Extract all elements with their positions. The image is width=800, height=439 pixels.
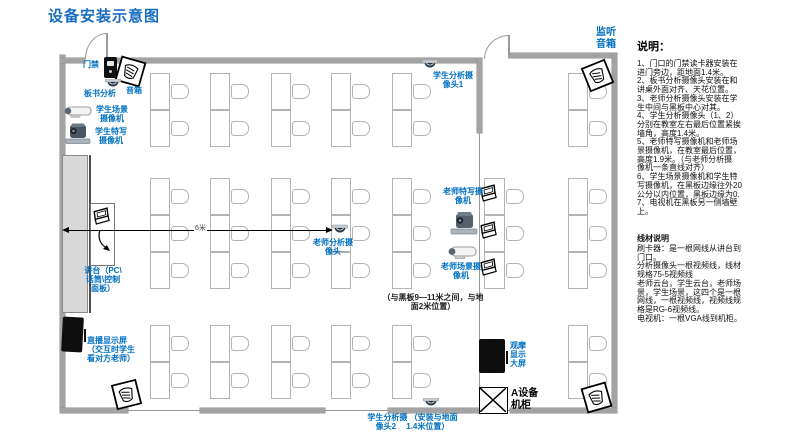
wall-top-left-segment — [60, 58, 85, 63]
desk — [150, 252, 170, 289]
chair — [171, 84, 189, 99]
desk — [271, 252, 291, 289]
chair — [171, 336, 189, 351]
door-access-label: 门禁 — [83, 60, 99, 69]
notes-heading: 说明： — [637, 38, 670, 54]
chair — [589, 226, 607, 241]
desk — [568, 215, 588, 252]
desk — [210, 178, 230, 215]
board-analysis-camera-icon — [105, 77, 121, 88]
student-scene-camera-label: 学生场景 摄像机 — [92, 105, 132, 123]
student-closeup-camera-label: 学生特写 摄像机 — [91, 127, 131, 145]
desk — [392, 252, 412, 289]
desk — [150, 215, 170, 252]
wall-top-observation — [509, 53, 617, 58]
chair — [292, 263, 310, 278]
desk — [392, 110, 412, 147]
chair — [589, 189, 607, 204]
chair — [352, 121, 370, 136]
chair — [231, 189, 249, 204]
observation-door-leaf — [508, 35, 510, 58]
chair — [231, 336, 249, 351]
chair — [352, 263, 370, 278]
chair — [413, 336, 431, 351]
cable-notes-body: 刷卡器：是一根网线从讲台到 门口。 分析摄像头一根视频线，线材 规格75-5视频… — [637, 245, 795, 323]
desk — [271, 110, 291, 147]
chair — [231, 226, 249, 241]
desk — [331, 178, 351, 215]
live-display-mount — [84, 329, 86, 342]
desk — [568, 325, 588, 362]
speaker-icon-classroom-bottom — [110, 378, 143, 411]
chair — [352, 373, 370, 388]
chair — [171, 121, 189, 136]
desk — [331, 110, 351, 147]
desk — [210, 325, 230, 362]
chair — [292, 189, 310, 204]
notes-body: 1、门口的门禁读卡器安装在 进门旁边，距地面1.4米。 2、板书分析摄像头安装在… — [637, 60, 795, 217]
chair — [231, 84, 249, 99]
cable-notes-heading: 线材说明 — [637, 235, 795, 244]
chair — [413, 189, 431, 204]
observe-display-screen — [479, 339, 505, 373]
live-display-screen — [61, 316, 84, 352]
chair — [506, 226, 524, 241]
equipment-installation-diagram: 设备安装示意图 讲台（PC\ 话筒\控制 面板） 直播显示屏 （交互时学生 看对… — [0, 0, 800, 439]
desk — [150, 325, 170, 362]
observation-door-arc — [484, 35, 509, 59]
desk — [568, 110, 588, 147]
student-analysis-camera2-label: 学生分析摄 （安装与地面 像头2 1.4米位置） — [330, 413, 495, 431]
teacher-closeup-camera-label: 老师特写摄 像机 — [438, 187, 488, 205]
equipment-cabinet-label: A设备 机柜 — [511, 388, 538, 412]
entry-door-leaf — [106, 33, 108, 58]
chair — [506, 189, 524, 204]
chair — [292, 121, 310, 136]
chair — [589, 263, 607, 278]
desk — [392, 178, 412, 215]
podium-curved-arrow — [95, 228, 115, 256]
desk — [210, 215, 230, 252]
observe-display-label: 观摩 显示 大屏 — [510, 341, 526, 368]
desk — [271, 325, 291, 362]
page-title: 设备安装示意图 — [48, 5, 160, 26]
desk — [210, 252, 230, 289]
desk — [392, 325, 412, 362]
chair — [292, 84, 310, 99]
chair — [352, 84, 370, 99]
desk — [392, 215, 412, 252]
measure-arrow-left — [62, 227, 69, 233]
chair — [413, 121, 431, 136]
desk — [271, 178, 291, 215]
live-display-label: 直播显示屏 （交互时学生 看对方老师） — [87, 336, 135, 363]
desk — [331, 362, 351, 399]
teacher-analysis-camera-label: 老师分析摄 像头 — [307, 238, 359, 256]
wall-right — [612, 53, 617, 413]
chair — [292, 336, 310, 351]
chair — [171, 189, 189, 204]
chair — [352, 336, 370, 351]
measure-distance-label: 6米 — [194, 223, 207, 233]
chair — [171, 373, 189, 388]
desk — [568, 178, 588, 215]
chair — [413, 373, 431, 388]
equipment-cabinet-icon — [479, 387, 508, 414]
desk — [271, 215, 291, 252]
wall-bottom-seg2 — [200, 408, 325, 413]
student-analysis-camera2-icon — [423, 396, 439, 407]
chair — [292, 373, 310, 388]
desk — [150, 110, 170, 147]
chair — [352, 189, 370, 204]
chair — [589, 121, 607, 136]
desk — [392, 73, 412, 110]
desk — [210, 73, 230, 110]
student-analysis-camera1-icon — [422, 58, 438, 69]
teacher-scene-camera-label: 老师场景摄 像机 — [435, 262, 487, 280]
desk — [210, 362, 230, 399]
desk — [568, 252, 588, 289]
student-analysis-camera1-label: 学生分析摄 像头1 — [428, 71, 478, 89]
podium-label: 讲台（PC\ 话筒\控制 面板） — [77, 266, 129, 293]
student-closeup-camera-icon — [63, 121, 93, 151]
chair — [589, 336, 607, 351]
desk — [392, 362, 412, 399]
desk — [331, 73, 351, 110]
wall-divider-thick — [477, 58, 482, 133]
desk — [150, 362, 170, 399]
desk — [271, 362, 291, 399]
monitor-speaker-label: 监听 音箱 — [586, 27, 626, 51]
chair — [413, 263, 431, 278]
rear-distance-note: （与黑板9—11米之间，与地 面2米位置） — [368, 293, 498, 311]
chair — [231, 263, 249, 278]
entry-door-arc — [85, 33, 107, 59]
teacher-analysis-camera-icon — [331, 223, 347, 234]
speaker-front-left-label: 音箱 — [126, 86, 142, 95]
desk — [150, 178, 170, 215]
board-analysis-label: 板书分析 — [84, 89, 116, 98]
desk — [331, 252, 351, 289]
chair — [231, 121, 249, 136]
desk — [271, 73, 291, 110]
chair — [231, 373, 249, 388]
observe-display-mount — [506, 351, 508, 364]
chair — [171, 263, 189, 278]
chair — [506, 263, 524, 278]
chair — [171, 226, 189, 241]
chair — [413, 226, 431, 241]
teacher-closeup-camera-icon — [448, 209, 480, 241]
desk — [331, 325, 351, 362]
desk — [150, 73, 170, 110]
desk — [210, 110, 230, 147]
